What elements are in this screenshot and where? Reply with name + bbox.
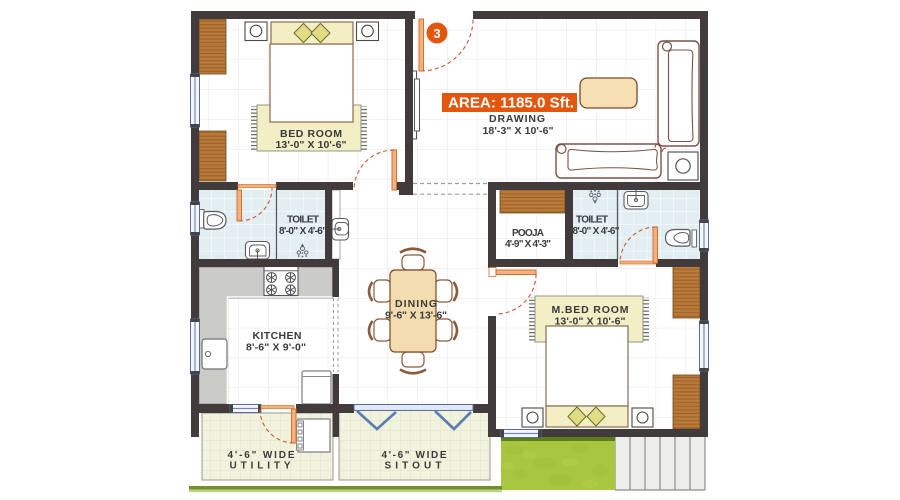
svg-text:KITCHEN: KITCHEN [253, 330, 302, 342]
svg-text:M.BED ROOM: M.BED ROOM [552, 304, 629, 316]
svg-text:3: 3 [433, 26, 440, 41]
svg-text:8'-6" X 9'-0": 8'-6" X 9'-0" [246, 342, 306, 354]
svg-text:9'-6" X 13'-6": 9'-6" X 13'-6" [385, 310, 447, 322]
svg-text:DINING: DINING [395, 298, 437, 310]
svg-text:13'-0" X 10'-6": 13'-0" X 10'-6" [276, 139, 347, 151]
svg-text:8'-0" X 4'-6": 8'-0" X 4'-6" [279, 226, 327, 237]
svg-text:13'-0" X 10'-6": 13'-0" X 10'-6" [555, 316, 626, 328]
svg-text:DRAWING: DRAWING [489, 113, 545, 125]
svg-text:POOJA: POOJA [512, 228, 544, 239]
svg-text:18'-3" X 10'-6": 18'-3" X 10'-6" [483, 125, 554, 137]
svg-text:4'-9" X 4'-3": 4'-9" X 4'-3" [505, 239, 551, 250]
svg-text:TOILET: TOILET [576, 215, 608, 226]
svg-text:AREA: 1185.0 Sft.: AREA: 1185.0 Sft. [448, 96, 574, 112]
svg-text:TOILET: TOILET [287, 215, 319, 226]
svg-text:8'-0" X 4'-6": 8'-0" X 4'-6" [573, 226, 620, 237]
